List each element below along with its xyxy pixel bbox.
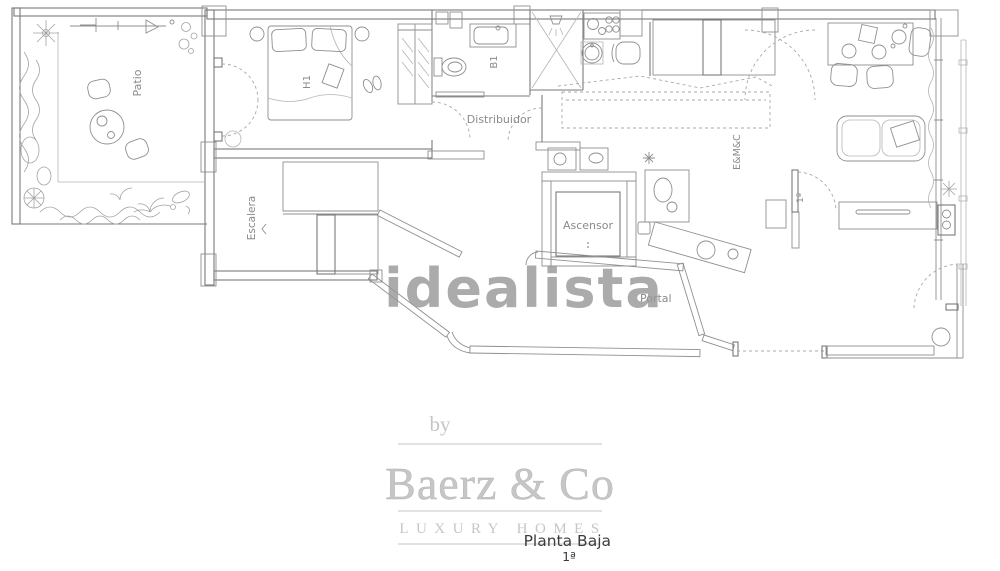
floor-plan-drawing: Patio bbox=[0, 0, 1000, 571]
emc-label: E&M&C bbox=[732, 134, 743, 170]
bed bbox=[250, 26, 382, 120]
caption-floor: 1ª bbox=[562, 549, 576, 564]
distribuidor-label: Distribuidor bbox=[467, 113, 532, 126]
patio-door-arcs bbox=[214, 58, 258, 147]
walls bbox=[201, 6, 958, 286]
sink bbox=[470, 24, 516, 47]
kitchen bbox=[581, 13, 751, 273]
unit-door: 1ª bbox=[766, 170, 836, 248]
unit-door-label: 1ª bbox=[796, 193, 806, 203]
patio-label: Patio bbox=[131, 69, 144, 96]
sofa bbox=[837, 116, 925, 161]
branding-name: Baerz & Co bbox=[385, 458, 615, 509]
dining-table bbox=[828, 23, 932, 89]
toilet bbox=[434, 58, 466, 76]
h1-label: H1 bbox=[302, 75, 313, 89]
ascensor: Ascensor bbox=[542, 148, 636, 266]
distribuidor: Distribuidor bbox=[432, 102, 542, 142]
ascensor-label: Ascensor bbox=[563, 219, 614, 232]
patio-trellis bbox=[70, 18, 174, 33]
glass-facade-right bbox=[929, 18, 968, 306]
living-dining: E&M&C 1ª bbox=[732, 18, 967, 306]
patio-plants bbox=[20, 20, 198, 224]
escalera-label: Escalera bbox=[246, 196, 258, 240]
branding-logo: by Baerz & Co LUXURY HOMES bbox=[385, 412, 615, 544]
bedroom-h1: H1 bbox=[214, 24, 432, 147]
patio: Patio bbox=[12, 8, 207, 224]
shower bbox=[532, 12, 581, 88]
upper-stair-void bbox=[558, 20, 775, 128]
floor-plan-page: Patio bbox=[0, 0, 1000, 571]
wardrobe bbox=[398, 24, 432, 104]
bathroom-b1: B1 bbox=[434, 12, 581, 88]
idealista-watermark: idealista bbox=[384, 257, 664, 320]
branding-prefix: by bbox=[430, 412, 452, 436]
plan-caption: Planta Baja 1ª bbox=[524, 532, 611, 564]
caption-title: Planta Baja bbox=[524, 532, 611, 550]
tv-console bbox=[839, 202, 937, 229]
b1-label: B1 bbox=[489, 55, 500, 68]
